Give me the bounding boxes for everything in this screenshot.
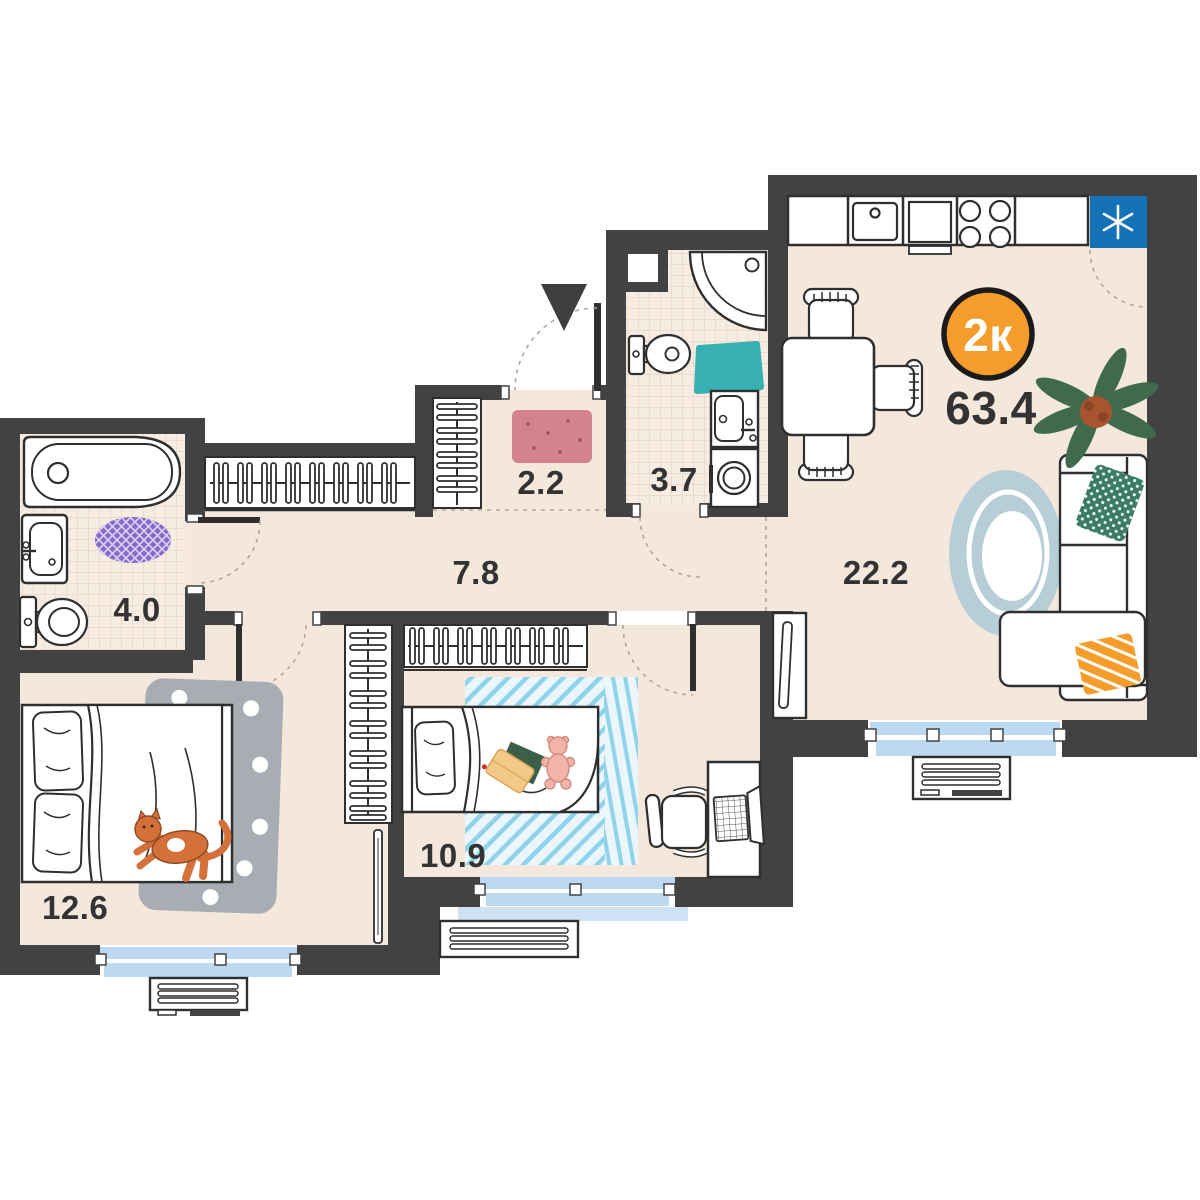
tv-panel-icon (374, 830, 382, 943)
wardrobe-icon (345, 625, 392, 823)
sink-icon (853, 203, 897, 240)
room-label-kitchen-living: 22.2 (843, 554, 909, 591)
shelf-rack-icon (433, 398, 481, 508)
fridge-icon (1090, 196, 1147, 248)
room-label-entry-hall: 2.2 (517, 464, 564, 501)
window-icon (458, 877, 688, 921)
room-label-wc: 3.7 (650, 461, 697, 498)
oven-icon (909, 202, 951, 254)
rug-teal (697, 344, 761, 391)
chair-icon (804, 289, 858, 342)
wardrobe-icon (205, 457, 415, 510)
office-chair-icon (645, 790, 706, 855)
air-conditioner-icon (150, 978, 247, 1016)
window-icon (864, 722, 1066, 756)
unit-badge-label: 2к (963, 309, 1013, 361)
wardrobe-icon (404, 625, 587, 670)
unit-badge: 2к (944, 290, 1032, 378)
room-label-bedroom: 12.6 (42, 889, 108, 926)
entrance-arrow-icon (541, 284, 587, 331)
total-area-label: 63.4 (945, 382, 1037, 434)
air-conditioner-icon (913, 757, 1010, 799)
sink-icon (22, 515, 67, 583)
window-icon (95, 947, 301, 977)
sink-icon (711, 391, 758, 447)
floor-plan: 2к 63.4 22.2 7.8 2.2 3.7 4.0 12.6 10.9 (0, 0, 1200, 1200)
chair-icon (872, 360, 922, 416)
room-label-corridor: 7.8 (452, 554, 499, 591)
window-sill (458, 907, 688, 921)
vent-shaft (628, 254, 658, 282)
washing-machine-icon (709, 449, 758, 507)
rug-purple (95, 517, 171, 563)
bathtub-icon (24, 437, 180, 507)
air-conditioner-icon (440, 921, 578, 957)
floor-plan-canvas: 2к 63.4 22.2 7.8 2.2 3.7 4.0 12.6 10.9 (0, 0, 1200, 1200)
kitchen-area (788, 196, 1147, 254)
toilet-icon (629, 335, 690, 374)
room-label-kids-room: 10.9 (420, 837, 486, 874)
room-label-bathroom: 4.0 (113, 591, 160, 628)
tv-stand-icon (773, 613, 806, 718)
rug-pink (512, 410, 592, 463)
toilet-icon (20, 597, 87, 647)
